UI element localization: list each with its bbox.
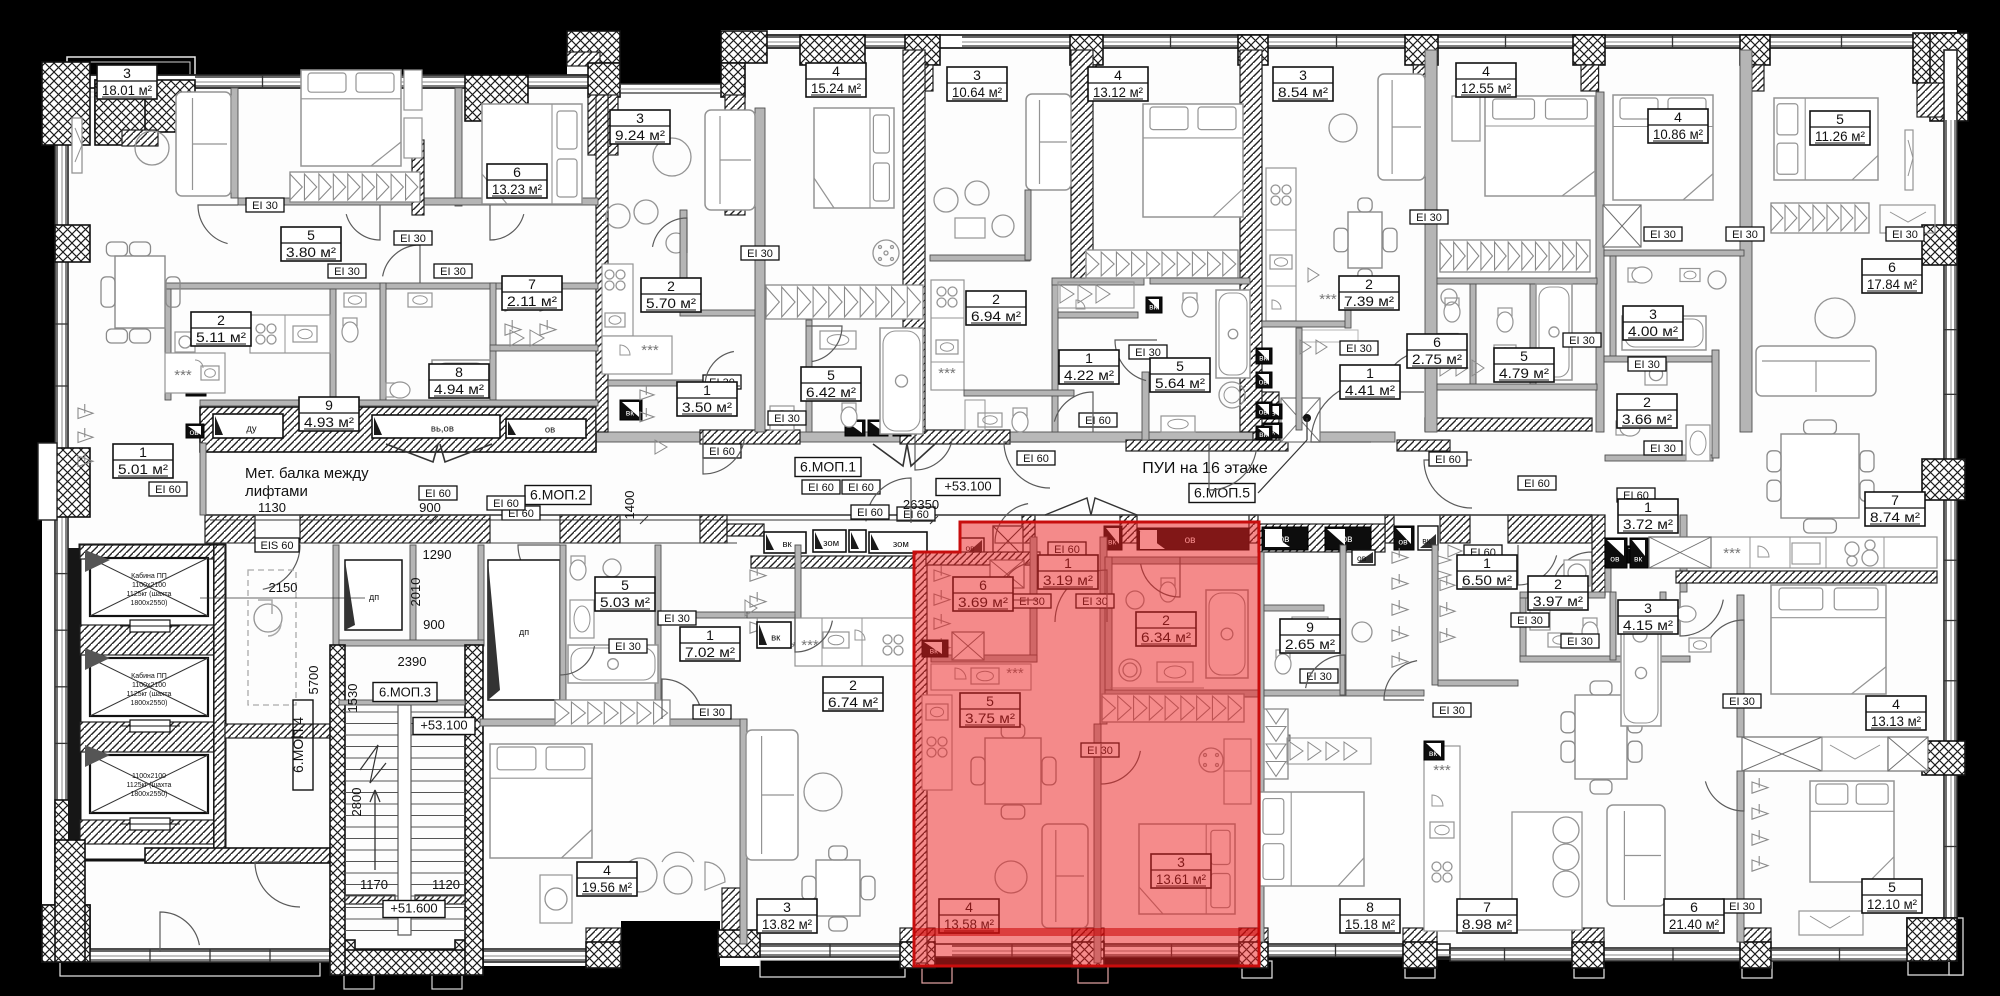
svg-text:EI 60: EI 60 [808,482,834,494]
svg-text:EI 30: EI 30 [1569,335,1595,347]
svg-text:2: 2 [1643,394,1651,410]
svg-text:13.82 м²: 13.82 м² [762,916,812,932]
svg-text:6: 6 [1690,899,1698,915]
svg-text:1100х2100: 1100х2100 [132,773,166,780]
svg-text:1130: 1130 [258,500,286,515]
svg-text:ов: ов [189,427,199,437]
svg-text:EI 30: EI 30 [1650,443,1676,455]
svg-text:900: 900 [423,617,445,632]
svg-text:900: 900 [419,500,441,515]
svg-text:3: 3 [123,65,131,81]
svg-text:3.72 м²: 3.72 м² [1623,516,1673,532]
svg-text:5: 5 [307,227,315,243]
svg-text:6: 6 [513,164,521,180]
svg-text:EI 30: EI 30 [1634,359,1660,371]
svg-text:дп: дп [519,627,529,637]
svg-text:2: 2 [1365,276,1373,292]
svg-text:21.40 м²: 21.40 м² [1669,916,1719,932]
svg-text:15.18 м²: 15.18 м² [1345,916,1395,932]
svg-text:7: 7 [1483,899,1491,915]
svg-text:вк: вк [1634,553,1643,563]
svg-text:+51.600: +51.600 [390,901,437,916]
svg-text:1: 1 [1644,499,1652,515]
svg-text:EI 60: EI 60 [848,482,874,494]
svg-text:ов: ов [545,425,555,436]
svg-text:EI 30: EI 30 [440,266,466,278]
svg-text:7: 7 [528,276,536,292]
svg-text:EI 30: EI 30 [1732,229,1758,241]
svg-text:EI 30: EI 30 [1650,229,1676,241]
svg-text:2: 2 [1554,576,1562,592]
svg-text:ду: ду [246,423,257,434]
svg-text:18.01 м²: 18.01 м² [102,82,152,98]
svg-text:8.74 м²: 8.74 м² [1870,509,1920,525]
svg-text:1530: 1530 [345,684,360,713]
svg-text:EI 30: EI 30 [334,266,360,278]
svg-text:3: 3 [1299,67,1307,83]
svg-text:4.22 м²: 4.22 м² [1064,367,1114,383]
svg-text:4: 4 [1674,109,1682,125]
svg-text:2150: 2150 [269,580,298,595]
svg-text:***: *** [174,367,192,384]
svg-text:2390: 2390 [398,654,427,669]
svg-text:EI 30: EI 30 [615,641,641,653]
svg-text:EI 60: EI 60 [155,484,181,496]
svg-text:Мет. балка между: Мет. балка между [245,465,369,482]
svg-text:1: 1 [703,382,711,398]
svg-text:8.54 м²: 8.54 м² [1278,84,1328,100]
svg-text:EI 30: EI 30 [774,413,800,425]
svg-text:4.00 м²: 4.00 м² [1628,323,1678,339]
svg-text:***: *** [1319,291,1337,308]
svg-text:10.64 м²: 10.64 м² [952,84,1002,100]
svg-text:2800: 2800 [349,788,364,817]
svg-text:1800х2550): 1800х2550) [131,700,168,707]
svg-text:2: 2 [849,677,857,693]
svg-text:лифтами: лифтами [245,483,308,500]
svg-text:3: 3 [1644,600,1652,616]
svg-text:6.42 м²: 6.42 м² [806,384,856,400]
svg-text:5.03 м²: 5.03 м² [600,594,650,610]
svg-text:3.66 м²: 3.66 м² [1622,411,1672,427]
svg-text:2: 2 [217,312,225,328]
svg-text:5.70 м²: 5.70 м² [646,295,696,311]
svg-text:6.МОП.3: 6.МОП.3 [379,685,431,700]
svg-text:2: 2 [992,291,1000,307]
svg-text:EI 60: EI 60 [709,446,735,458]
svg-text:ов: ов [1259,406,1269,416]
svg-text:3.97 м²: 3.97 м² [1533,593,1583,609]
svg-text:вк: вк [1422,535,1431,545]
svg-text:EI 60: EI 60 [857,507,883,519]
svg-text:2: 2 [667,278,675,294]
svg-text:7.02 м²: 7.02 м² [685,644,735,660]
svg-text:дп: дп [369,592,379,602]
svg-text:4.93 м²: 4.93 м² [304,414,354,430]
svg-text:EI 30: EI 30 [699,707,725,719]
svg-text:EI 60: EI 60 [1524,478,1550,490]
svg-text:EI 30: EI 30 [1439,705,1465,717]
svg-text:6: 6 [1433,334,1441,350]
svg-text:1: 1 [1366,365,1374,381]
svg-text:ов: ов [1357,553,1367,563]
svg-text:EI 30: EI 30 [1416,212,1442,224]
svg-text:5.64 м²: 5.64 м² [1155,375,1205,391]
svg-text:вк: вк [1259,352,1268,362]
svg-text:8: 8 [1366,899,1374,915]
svg-text:5700: 5700 [306,666,321,695]
svg-text:4.41 м²: 4.41 м² [1345,382,1395,398]
svg-text:1100х2100: 1100х2100 [132,682,166,689]
svg-text:13.13 м²: 13.13 м² [1871,713,1921,729]
svg-text:2010: 2010 [408,578,423,607]
svg-text:5.01 м²: 5.01 м² [118,461,168,477]
svg-text:1170: 1170 [360,877,388,892]
svg-text:2.11 м²: 2.11 м² [507,293,557,309]
svg-text:EI 30: EI 30 [1567,636,1593,648]
svg-text:EI 30: EI 30 [1517,615,1543,627]
svg-text:вк: вк [1429,748,1438,758]
svg-text:EI 60: EI 60 [1435,454,1461,466]
svg-text:4: 4 [1114,67,1122,83]
svg-text:+53.100: +53.100 [944,479,991,494]
svg-text:1125кг (шахта: 1125кг (шахта [127,591,172,598]
svg-text:6.МОП.5: 6.МОП.5 [1194,485,1250,501]
svg-text:1: 1 [1085,350,1093,366]
svg-text:3.50 м²: 3.50 м² [682,399,732,415]
svg-text:вк: вк [1259,429,1268,439]
svg-text:EI 60: EI 60 [493,498,519,510]
svg-text:1290: 1290 [423,547,452,562]
svg-text:1400: 1400 [622,491,637,520]
svg-text:5: 5 [1888,879,1896,895]
svg-text:EI 30: EI 30 [1729,696,1755,708]
svg-text:ов: ов [1259,376,1269,386]
svg-text:6.50 м²: 6.50 м² [1462,572,1512,588]
svg-text:7: 7 [1891,492,1899,508]
svg-text:3.80 м²: 3.80 м² [286,244,336,260]
svg-text:зом: зом [823,538,839,549]
svg-text:6.МОП.2: 6.МОП.2 [530,487,586,503]
svg-text:4.79 м²: 4.79 м² [1499,365,1549,381]
svg-text:+53.100: +53.100 [420,718,467,733]
svg-text:2.65 м²: 2.65 м² [1285,636,1335,652]
svg-text:3: 3 [973,67,981,83]
svg-text:1125кг (шахта: 1125кг (шахта [127,691,172,698]
svg-text:4.94 м²: 4.94 м² [434,381,484,397]
svg-text:EI 30: EI 30 [664,613,690,625]
svg-text:Кабина ПП: Кабина ПП [131,572,167,580]
svg-text:1: 1 [1483,555,1491,571]
svg-text:3: 3 [1649,306,1657,322]
svg-text:EI 30: EI 30 [252,200,278,212]
svg-text:EI 60: EI 60 [1023,453,1049,465]
svg-text:5: 5 [1176,358,1184,374]
svg-text:1800х2550): 1800х2550) [131,600,168,607]
svg-text:EIS 60: EIS 60 [260,540,293,552]
svg-text:***: *** [938,365,956,382]
svg-text:12.55 м²: 12.55 м² [1461,80,1511,96]
svg-text:15.24 м²: 15.24 м² [811,80,861,96]
svg-text:9.24 м²: 9.24 м² [615,127,665,143]
svg-text:26350: 26350 [903,497,939,512]
svg-text:12.10 м²: 12.10 м² [1867,896,1917,912]
svg-text:EI 60: EI 60 [1085,415,1111,427]
svg-text:4: 4 [1482,63,1490,79]
svg-text:Кабина ПП: Кабина ПП [131,672,167,680]
svg-text:ов: ов [1398,537,1408,547]
svg-text:EI 30: EI 30 [1306,671,1332,683]
svg-text:ов: ов [1342,534,1353,545]
svg-text:***: *** [641,342,659,359]
svg-text:ов: ов [1610,553,1620,563]
svg-text:8.98 м²: 8.98 м² [1462,916,1512,932]
svg-text:7.39 м²: 7.39 м² [1344,293,1394,309]
svg-text:3: 3 [636,110,644,126]
svg-text:4: 4 [832,63,840,79]
svg-text:6.94 м²: 6.94 м² [971,308,1021,324]
svg-text:3: 3 [783,899,791,915]
svg-text:1800х2550): 1800х2550) [131,791,168,798]
svg-text:6: 6 [1888,259,1896,275]
svg-text:вк: вк [782,539,792,550]
svg-text:10.86 м²: 10.86 м² [1653,126,1703,142]
svg-text:4: 4 [1892,696,1900,712]
svg-text:1120: 1120 [432,877,460,892]
svg-text:1125кг (шахта: 1125кг (шахта [127,782,172,789]
svg-text:1: 1 [706,627,714,643]
svg-text:1100х2100: 1100х2100 [132,582,166,589]
svg-text:9: 9 [325,397,333,413]
svg-text:4.15 м²: 4.15 м² [1623,617,1673,633]
svg-text:5: 5 [621,577,629,593]
svg-text:вк: вк [771,633,781,644]
svg-text:EI 30: EI 30 [1346,343,1372,355]
svg-text:13.23 м²: 13.23 м² [492,181,542,197]
svg-text:6.МОП.1: 6.МОП.1 [800,459,856,475]
svg-text:***: *** [1723,545,1741,562]
svg-text:11.26 м²: 11.26 м² [1815,128,1865,144]
svg-text:13.12 м²: 13.12 м² [1093,84,1143,100]
svg-text:***: *** [1433,762,1451,779]
svg-text:4: 4 [603,862,611,878]
svg-text:EI 60: EI 60 [425,488,451,500]
svg-text:EI 30: EI 30 [400,233,426,245]
svg-text:6.74 м²: 6.74 м² [828,694,878,710]
svg-text:9: 9 [1306,619,1314,635]
svg-text:2.75 м²: 2.75 м² [1412,351,1462,367]
svg-text:1: 1 [139,444,147,460]
svg-text:вь,ов: вь,ов [431,424,454,435]
svg-text:EI 30: EI 30 [747,248,773,260]
svg-text:17.84 м²: 17.84 м² [1867,276,1917,292]
svg-text:8: 8 [455,364,463,380]
svg-text:EI 30: EI 30 [1892,229,1918,241]
svg-text:5: 5 [827,367,835,383]
svg-text:EI 30: EI 30 [1729,901,1755,913]
svg-text:5.11 м²: 5.11 м² [196,329,246,345]
svg-text:зом: зом [893,539,909,550]
svg-text:вк: вк [626,408,635,418]
svg-text:вк: вк [1149,301,1158,311]
svg-text:5: 5 [1520,348,1528,364]
svg-text:19.56 м²: 19.56 м² [582,879,632,895]
svg-text:5: 5 [1836,111,1844,127]
